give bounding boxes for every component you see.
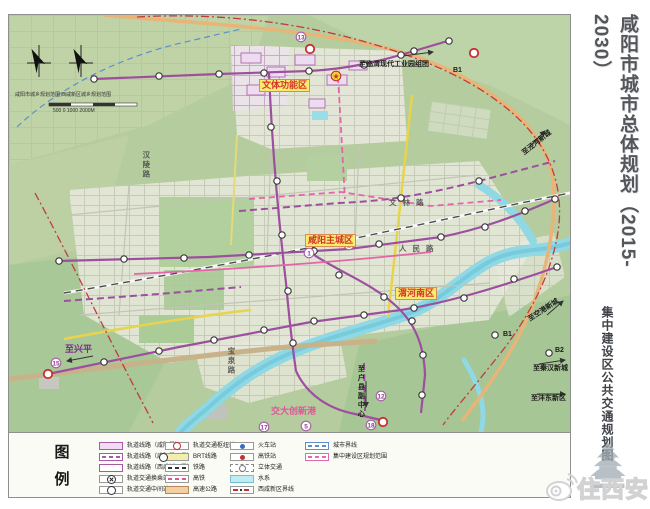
station-marker [411, 48, 417, 54]
station-marker [546, 350, 552, 356]
legend-item: 轨道交通枢纽站 [165, 442, 235, 450]
legend-item: 铁路 [165, 464, 235, 472]
legend-heading: 图 例 [53, 439, 71, 493]
station-marker [361, 62, 367, 68]
legend-label: 轨道交通中间站 [127, 486, 169, 494]
station-marker [56, 258, 62, 264]
station-marker [261, 70, 267, 76]
legend-label: 轨道交通枢纽站 [193, 442, 235, 450]
legend-swatch-city-boundary [305, 442, 329, 450]
numbered-stop-label: 17 [260, 424, 268, 431]
pond [312, 111, 328, 120]
legend-label: 立体交通 [258, 464, 282, 472]
station-marker [336, 272, 342, 278]
legend-swatch-construction-area [305, 453, 329, 461]
title-panel: 咸阳市城市总体规划（2015-2030） 集中建设区公共交通规划图 [571, 0, 650, 509]
station-marker [311, 318, 317, 324]
station-marker [381, 294, 387, 300]
station-marker [482, 224, 488, 230]
legend-swatch-brt-line [165, 453, 189, 461]
station-marker [419, 392, 425, 398]
legend-heading-char: 图 [53, 439, 71, 466]
planning-map: 13★12151218517 文体功能区咸 [9, 15, 570, 432]
station-marker [409, 318, 415, 324]
station-marker [306, 45, 314, 53]
legend-item: 集中建设区规划范围 [305, 453, 387, 461]
station-marker [492, 332, 498, 338]
weibo-logo-icon [544, 470, 580, 504]
numbered-stop-label: 15 [52, 360, 60, 367]
legend-label: 高铁站 [258, 453, 276, 461]
station-marker [306, 68, 312, 74]
legend-label: BRT线路 [193, 453, 217, 461]
numbered-stop-label: 18 [367, 422, 375, 429]
station-marker [438, 234, 444, 240]
map-title: 咸阳市城市总体规划（2015-2030） [587, 14, 641, 314]
numbered-stop-label: 5 [304, 423, 308, 430]
legend-item: 火车站 [230, 442, 294, 450]
station-marker [156, 73, 162, 79]
station-marker [411, 305, 417, 311]
legend-swatch-rail-line-future [99, 453, 123, 461]
station-marker [290, 340, 296, 346]
station-marker [552, 196, 558, 202]
station-marker [398, 52, 404, 58]
station-marker [379, 418, 387, 426]
legend-swatch-hsr-station [230, 453, 254, 461]
legend-label: 城市界线 [333, 442, 357, 450]
legend-swatch-high-speed-rail [165, 475, 189, 483]
station-marker [476, 178, 482, 184]
legend: 图 例 轨道线路（咸阳段） 轨道线路（咸阳段远景） 轨道线路（西咸新区段） 轨道… [9, 432, 570, 497]
legend-label: 西咸新区界线 [258, 486, 294, 494]
station-marker [44, 370, 52, 378]
legend-item: 水系 [230, 475, 294, 483]
station-marker [216, 71, 222, 77]
legend-swatch-transfer-station [99, 475, 123, 483]
legend-swatch-rail-line-xianyang [99, 442, 123, 450]
legend-column-3: 火车站 高铁站 立体交通 水系 西咸新区界线 [230, 442, 294, 494]
station-marker [398, 195, 404, 201]
station-marker [181, 255, 187, 261]
station-marker [279, 232, 285, 238]
legend-label: 铁路 [193, 464, 205, 472]
legend-label: 水系 [258, 475, 270, 483]
station-marker [274, 178, 280, 184]
scale-bar [49, 103, 137, 106]
legend-label: 火车站 [258, 442, 276, 450]
station-marker [156, 348, 162, 354]
station-marker [121, 256, 127, 262]
legend-column-4: 城市界线 集中建设区规划范围 [305, 442, 387, 461]
station-marker [285, 288, 291, 294]
watermark-text: 住西安 [577, 470, 649, 504]
legend-swatch-expressway [165, 486, 189, 494]
legend-item: 高铁 [165, 475, 235, 483]
legend-swatch-railway [165, 464, 189, 472]
station-marker [420, 352, 426, 358]
station-marker [461, 295, 467, 301]
station-marker [211, 337, 217, 343]
page: 13★12151218517 文体功能区咸 [0, 0, 650, 509]
legend-item: BRT线路 [165, 453, 235, 461]
station-marker [511, 276, 517, 282]
legend-heading-char: 例 [53, 466, 71, 493]
legend-column-2: 轨道交通枢纽站 BRT线路 铁路 高铁 高速公路 [165, 442, 235, 494]
watermark: 住西安 [544, 466, 650, 508]
numbered-stop-label: 13 [297, 34, 305, 41]
legend-label: 高铁 [193, 475, 205, 483]
legend-swatch-rail-line-xixian [99, 464, 123, 472]
map-sheet: 13★12151218517 文体功能区咸 [8, 14, 571, 498]
numbered-stop-label: 1 [307, 250, 311, 257]
station-marker [361, 312, 367, 318]
legend-swatch-xixian-boundary [230, 486, 254, 494]
station-marker [261, 327, 267, 333]
legend-item: 高速公路 [165, 486, 235, 494]
station-marker [246, 252, 252, 258]
legend-label: 轨道交通换乘站 [127, 475, 169, 483]
station-marker [376, 241, 382, 247]
legend-swatch-intermediate-station [99, 486, 123, 494]
legend-swatch-hub-station [165, 442, 189, 450]
legend-item: 高铁站 [230, 453, 294, 461]
legend-item: 西咸新区界线 [230, 486, 294, 494]
numbered-stop-label: 12 [377, 393, 385, 400]
station-marker [522, 208, 528, 214]
map-graphics: 13★12151218517 [9, 15, 570, 432]
legend-swatch-train-station [230, 442, 254, 450]
legend-label: 集中建设区规划范围 [333, 453, 387, 461]
station-marker [446, 38, 452, 44]
station-marker [101, 359, 107, 365]
legend-label: 高速公路 [193, 486, 217, 494]
legend-item: 城市界线 [305, 442, 387, 450]
legend-swatch-interchange [230, 464, 254, 472]
station-marker [470, 49, 478, 57]
station-marker [554, 264, 560, 270]
station-marker [91, 76, 97, 82]
legend-item: 立体交通 [230, 464, 294, 472]
station-marker [268, 124, 274, 130]
legend-swatch-water [230, 475, 254, 483]
numbered-stop-label: 2 [347, 242, 351, 249]
